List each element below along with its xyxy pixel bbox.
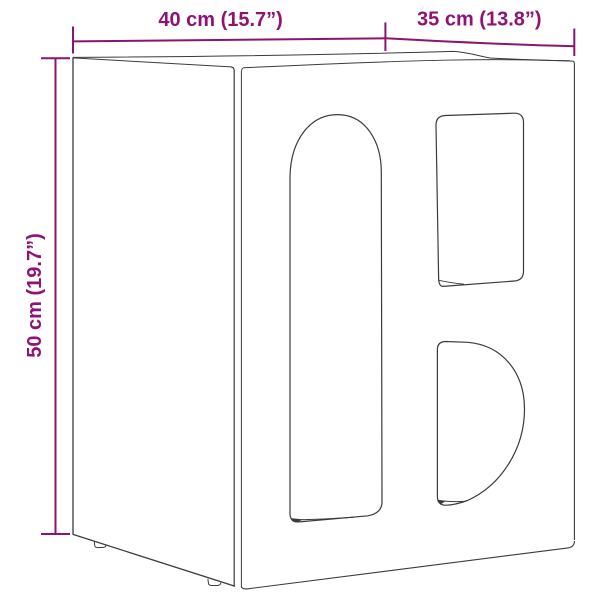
svg-text:35 cm (13.8”): 35 cm (13.8”) <box>417 9 542 31</box>
svg-text:40 cm (15.7”): 40 cm (15.7”) <box>158 9 283 31</box>
svg-text:50 cm (19.7”): 50 cm (19.7”) <box>24 233 46 358</box>
